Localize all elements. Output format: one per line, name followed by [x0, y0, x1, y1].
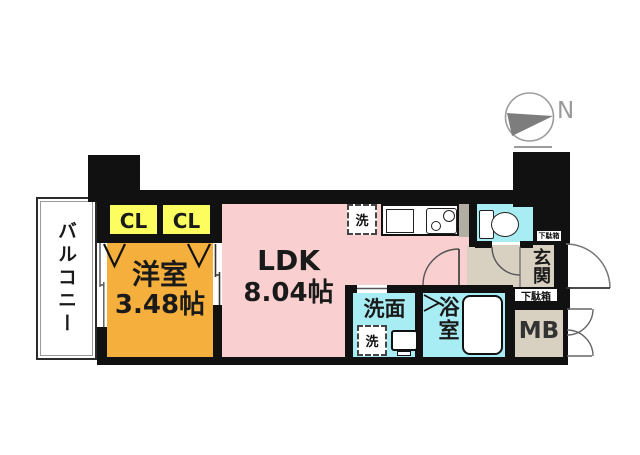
washer-kitchen-label: 洗: [355, 210, 368, 229]
western-room-label: 洋室 3.48帖: [103, 259, 217, 321]
floor-plan: 洗 洗 下駄箱 下駄箱 バルコニー CL CL 洋室 3.48帖 LDK 8.0…: [0, 0, 640, 455]
meter-box-label: MB: [515, 318, 563, 344]
western-room-size: 3.48帖: [103, 290, 217, 321]
closet-right-label: CL: [160, 209, 213, 233]
closet-left-label: CL: [107, 209, 160, 233]
western-room-name: 洋室: [103, 259, 217, 290]
shoe-cabinet-label: 下駄箱: [521, 288, 551, 303]
balcony-label: バルコニー: [53, 221, 80, 336]
stove-burner-large: [443, 210, 455, 222]
pillar-top-right: [513, 152, 570, 207]
wall-bottom: [97, 357, 568, 365]
mb-door-lower: [567, 330, 593, 356]
wall-closet-bottom: [107, 237, 213, 243]
north-label: N: [557, 98, 574, 124]
wall-bath-top: [386, 285, 513, 293]
wall-toilet-bottom-left: [475, 241, 492, 248]
stove-burner-small: [431, 221, 441, 231]
compass-circle: [506, 93, 554, 141]
wall-kitchen-toilet: [469, 190, 477, 247]
toilet-bowl: [491, 212, 519, 237]
wall-western-ldk-upper: [213, 202, 222, 243]
wall-toilet-bottom-right: [520, 241, 533, 248]
kitchen-duct: [459, 204, 469, 237]
shoe-cabinet-upper-label: 下駄箱: [539, 231, 560, 241]
wall-left-upper: [97, 202, 107, 243]
shoe-cabinet: 下駄箱: [514, 288, 558, 302]
compass-north-arrow: [507, 113, 553, 136]
entrance-door-arc: [566, 244, 610, 288]
kitchen-sink: [386, 209, 414, 233]
vanity-sink: [391, 330, 418, 351]
wall-top: [97, 190, 570, 204]
ldk-label: LDK 8.04帖: [226, 245, 351, 309]
washer-space-washroom: 洗: [357, 325, 387, 356]
wall-mb-right: [563, 310, 568, 357]
bathroom-label: 浴室: [433, 296, 463, 342]
washer-washroom-label: 洗: [365, 331, 378, 350]
mb-door-upper: [567, 309, 593, 335]
pillar-top-left: [88, 155, 140, 202]
washroom-label: 洗面: [356, 293, 413, 323]
wall-right-entrance: [554, 245, 568, 287]
shoe-cabinet-upper: 下駄箱: [536, 230, 562, 242]
washer-space-kitchen: 洗: [347, 204, 377, 235]
vanity-pedestal: [397, 351, 411, 356]
entrance-label: 玄関: [527, 248, 553, 284]
ldk-name: LDK: [226, 245, 351, 277]
ldk-size: 8.04帖: [226, 277, 351, 309]
washroom-door-gap: [357, 285, 387, 293]
bathtub: [462, 295, 503, 355]
